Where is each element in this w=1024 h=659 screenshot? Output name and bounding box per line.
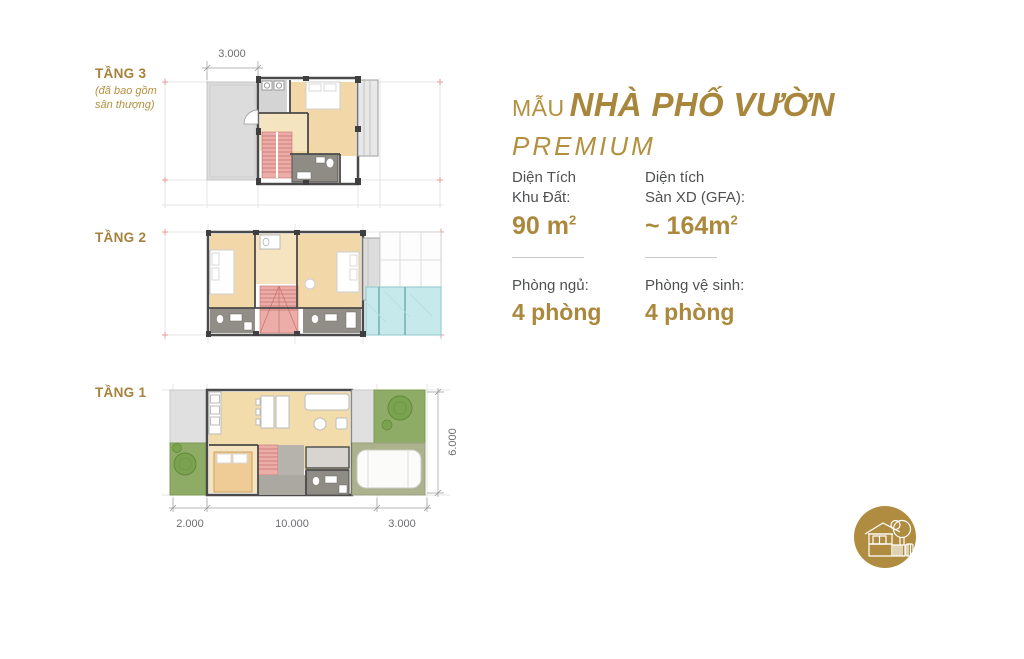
- bed-icon: [214, 452, 252, 492]
- terrace-area: [207, 82, 258, 180]
- bathroom: [292, 154, 338, 182]
- floor3-label-block: TẦNG 3 (đã bao gồm sân thượng): [95, 66, 165, 113]
- driveway-carport: [352, 443, 425, 495]
- floor3-note: (đã bao gồm sân thượng): [95, 84, 165, 113]
- bathroom-right: [303, 308, 361, 333]
- dim-3000-bottom: 3.000: [388, 518, 416, 530]
- spec-gfa-value: ~ 164m2: [645, 212, 815, 241]
- dimension-right: 6.000: [427, 388, 459, 497]
- floor3-plan-drawing: 3.000: [160, 42, 445, 217]
- floor2-label: TẦNG 2: [95, 230, 146, 245]
- dining-island: [256, 396, 289, 428]
- bathroom-left: [210, 308, 255, 333]
- spec-bedrooms-value: 4 phòng: [512, 299, 644, 326]
- kitchen-counter: [209, 392, 221, 434]
- bathroom: [306, 470, 349, 495]
- wc-middle: [260, 235, 280, 249]
- side-walkway: [352, 390, 374, 443]
- model-title-row: MẪU NHÀ PHỐ VƯỜN: [512, 86, 835, 124]
- dim-2000-bottom: 2.000: [176, 518, 204, 530]
- void-frame: [380, 232, 441, 287]
- dimension-bottom: 2.000 10.000 3.000: [169, 498, 431, 530]
- dim-10000-bottom: 10.000: [275, 518, 309, 530]
- model-title-main: NHÀ PHỐ VƯỜN: [570, 86, 835, 124]
- model-subtitle: PREMIUM: [512, 131, 656, 162]
- floor1-label: TẦNG 1: [95, 385, 146, 400]
- staircase: [260, 286, 298, 333]
- dim-6000-right: 6.000: [447, 428, 459, 456]
- spec-column-right: Diện tích Sàn XD (GFA): ~ 164m2 Phòng vệ…: [645, 168, 815, 326]
- hallway: [258, 475, 306, 495]
- dim-3000-top: 3.000: [218, 48, 246, 60]
- spec-land-area-label: Diện Tích Khu Đất:: [512, 168, 644, 208]
- model-title-prefix: MẪU: [512, 95, 565, 122]
- floor3-label: TẦNG 3: [95, 66, 165, 81]
- spec-column-left: Diện Tích Khu Đất: 90 m2 Phòng ngủ: 4 ph…: [512, 168, 644, 326]
- spec-bathrooms-value: 4 phòng: [645, 299, 815, 326]
- floor1-plan-drawing: 6.000 2.000 10.000 3.000: [160, 378, 465, 558]
- garden-right: [374, 390, 425, 443]
- patio-left: [170, 390, 207, 443]
- floor2-plan-drawing: [160, 222, 445, 353]
- stair-landing: [278, 445, 304, 475]
- dimension-top: 3.000: [202, 48, 263, 80]
- logo-circle: [854, 506, 916, 568]
- spec-gfa-label: Diện tích Sàn XD (GFA):: [645, 168, 815, 208]
- skylight-glass: [366, 287, 441, 335]
- bed-icon-left: [210, 250, 234, 294]
- spec-bathrooms-label: Phòng vệ sinh:: [645, 276, 815, 296]
- floor-plan-brochure-page: TẦNG 3 (đã bao gồm sân thượng) 3.000: [0, 0, 1024, 659]
- bed-icon: [306, 82, 340, 109]
- staircase: [262, 132, 292, 178]
- entry-porch: [306, 447, 349, 468]
- divider: [512, 257, 584, 258]
- balcony-right: [358, 80, 378, 156]
- spec-land-area-value: 90 m2: [512, 212, 644, 241]
- staircase: [258, 445, 304, 475]
- spec-bedrooms-label: Phòng ngủ:: [512, 276, 644, 296]
- floor2-label-block: TẦNG 2: [95, 230, 146, 245]
- brand-logo: [852, 504, 918, 570]
- divider: [645, 257, 717, 258]
- floor1-label-block: TẦNG 1: [95, 385, 146, 400]
- garden-left: [170, 443, 207, 495]
